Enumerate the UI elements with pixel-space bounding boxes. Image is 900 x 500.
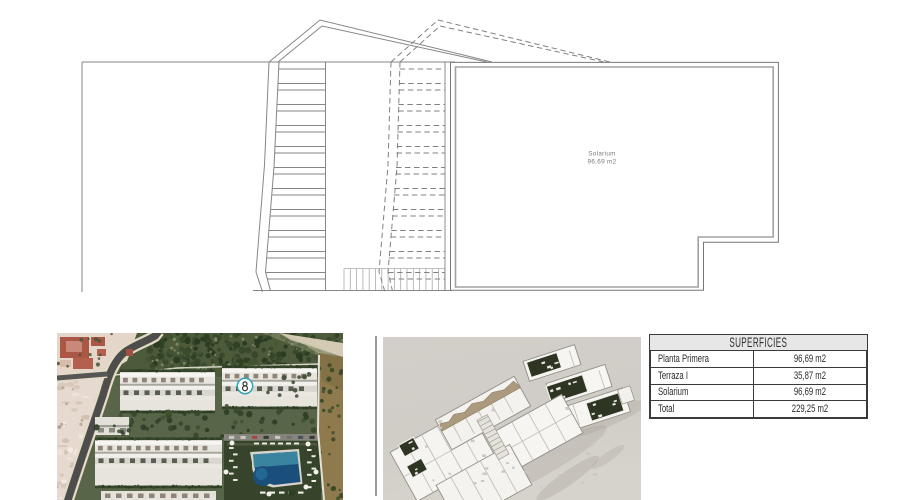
svg-text:Solarium: Solarium [588,151,616,158]
svg-text:96,69 m2: 96,69 m2 [587,159,616,166]
